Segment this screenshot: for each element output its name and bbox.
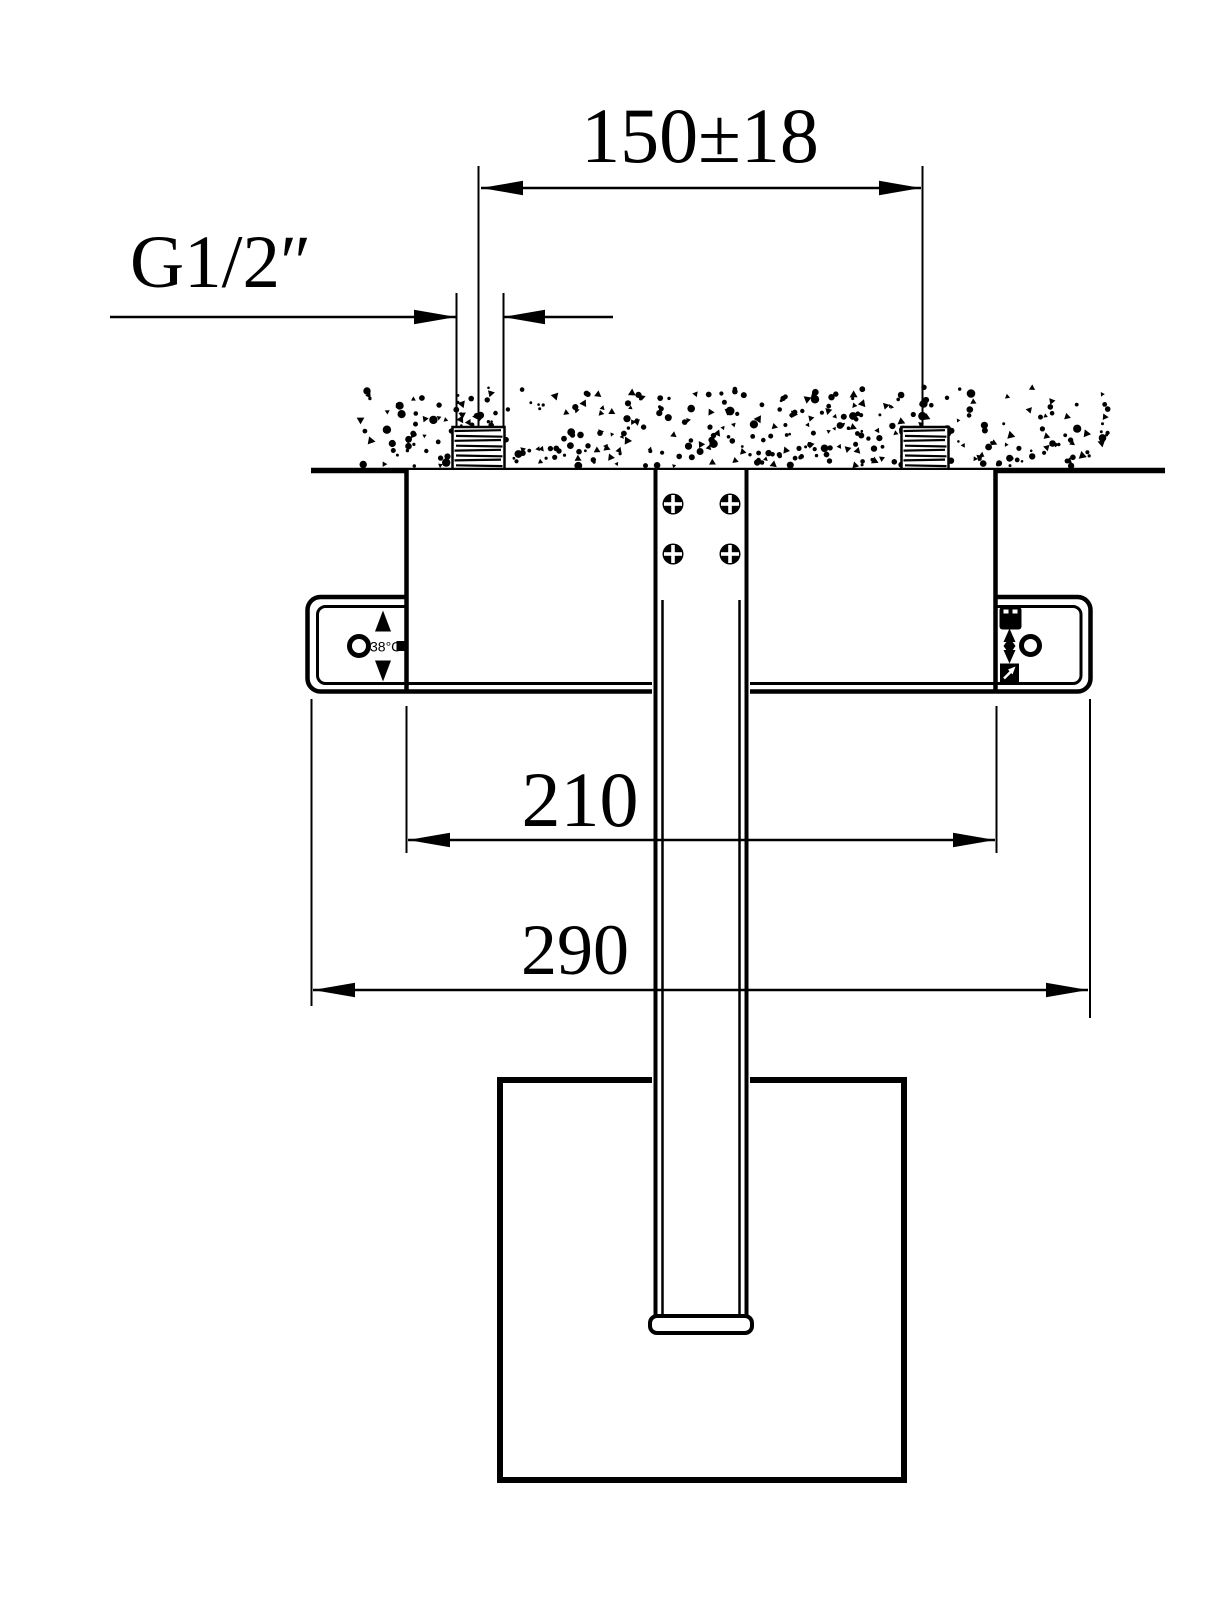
dimension-label-valve-body-width: 210 xyxy=(522,756,639,843)
dimension-label-trim-plate-width: 290 xyxy=(521,910,629,990)
arrowhead-left-icon xyxy=(481,181,523,195)
arrowhead-right-icon xyxy=(1046,983,1088,997)
screw-icon xyxy=(663,494,684,515)
thermostat-ring-icon xyxy=(350,637,369,656)
index-marker-icon xyxy=(397,641,407,651)
dimension-hole-spacing: 150±18 xyxy=(479,92,923,426)
technical-drawing-canvas: 150±18 G1/2″ xyxy=(0,0,1226,1601)
arrowhead-right-icon xyxy=(879,181,921,195)
screw-icon xyxy=(720,544,741,565)
toggle-tick xyxy=(1013,610,1018,614)
pipe-fill xyxy=(652,470,750,1330)
arrowhead-left-icon xyxy=(408,833,450,847)
toggle-tick xyxy=(1004,610,1009,614)
dimension-label-thread-size: G1/2″ xyxy=(130,221,311,304)
arrowhead-left-icon xyxy=(313,983,355,997)
dimension-label-hole-spacing: 150±18 xyxy=(581,92,819,179)
arrowhead-right-icon xyxy=(953,833,995,847)
wall-section xyxy=(311,384,1165,470)
installation-diagram: 150±18 G1/2″ xyxy=(0,0,1226,1601)
arrowhead-right-icon xyxy=(414,310,456,324)
screw-icon xyxy=(720,494,741,515)
flow-toggle-icon xyxy=(1000,607,1022,630)
arrowhead-left-icon xyxy=(503,310,545,324)
diverter-icon xyxy=(1000,664,1019,683)
screw-icon xyxy=(663,544,684,565)
pipe-end-cap xyxy=(650,1316,752,1333)
volume-ring-icon xyxy=(1022,637,1040,655)
pipe-nipple-right xyxy=(902,427,949,469)
pipe-nipple-left xyxy=(453,427,505,469)
nipple-body xyxy=(453,427,505,469)
dimension-thread-size: G1/2″ xyxy=(110,221,613,426)
supply-pipe xyxy=(650,470,752,1333)
nipple-body xyxy=(902,427,949,469)
